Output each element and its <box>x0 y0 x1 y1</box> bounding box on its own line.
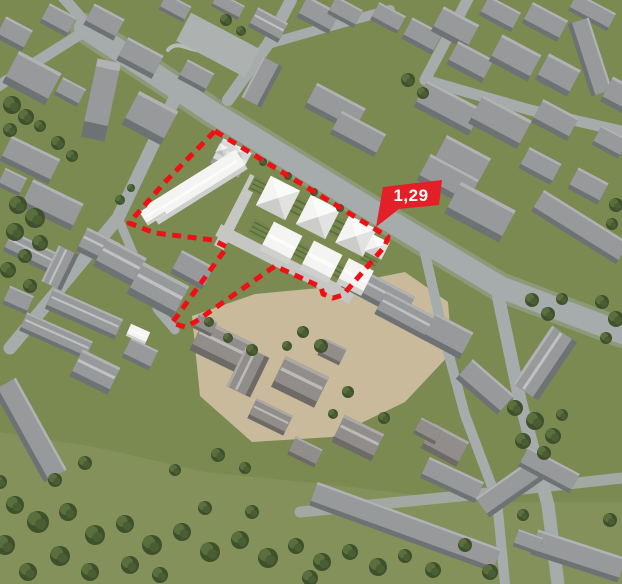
site-aerial-view: 1,29 <box>0 0 622 584</box>
aerial-render-canvas: 1,29 <box>0 0 622 584</box>
callout-label: 1,29 <box>393 186 428 205</box>
